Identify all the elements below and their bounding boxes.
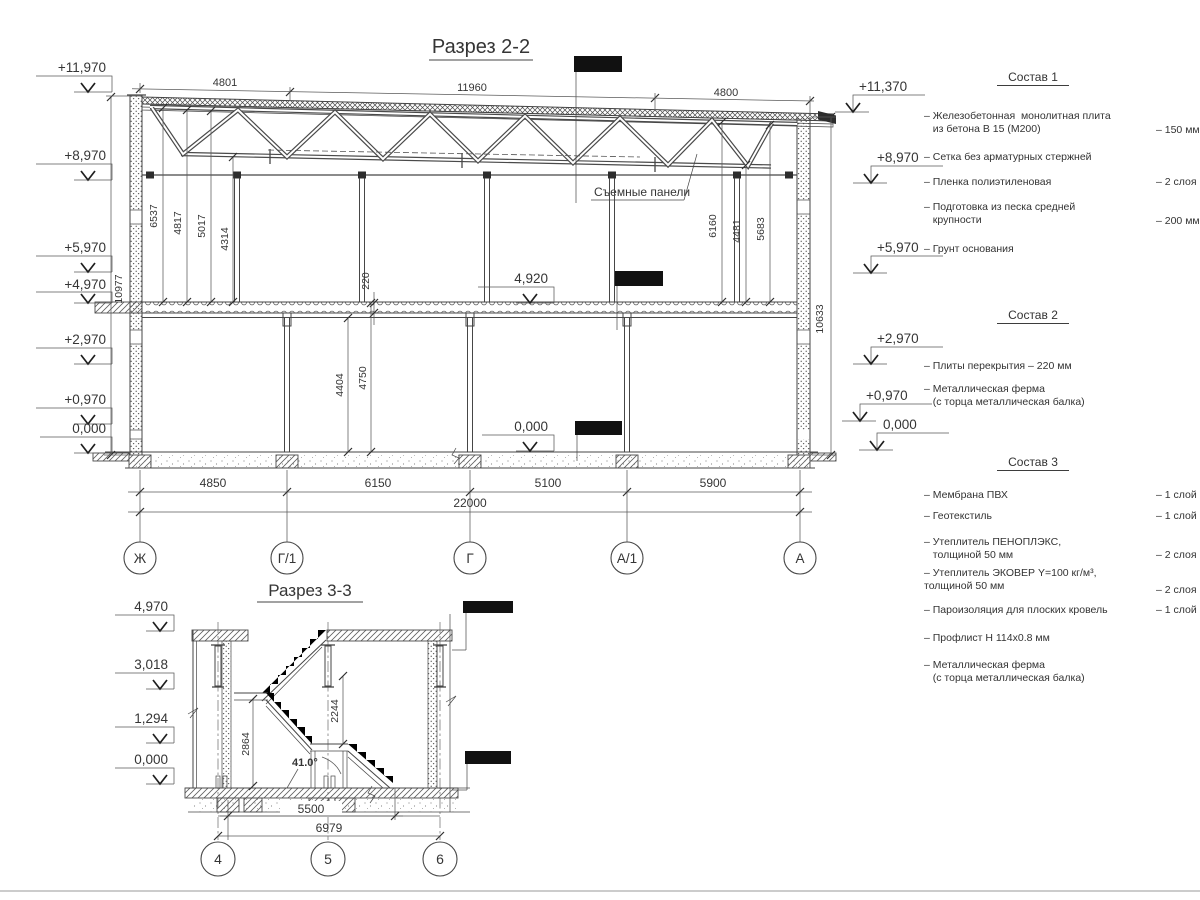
dim-5900: 5900	[700, 476, 727, 490]
grid-label-a: А	[795, 551, 804, 566]
roof-height-dims: 6537 4817 5017 4314 6160 4481 5683	[148, 104, 774, 306]
note-item: – Металлическая ферма (с торца металличе…	[924, 383, 1152, 408]
dim-4800: 4800	[714, 87, 738, 99]
section-2-2: Разрез 2-2	[36, 36, 949, 574]
grid-label-a1: А/1	[617, 551, 637, 566]
elev-8970-r: +8,970	[877, 150, 919, 165]
elev-0000-l: 0,000	[72, 421, 106, 436]
dim-5500: 5500	[298, 802, 325, 816]
dim-6150: 6150	[365, 476, 392, 490]
overall-height-dims: 10977 10633	[104, 93, 836, 459]
note-value: – 2 слоя	[1156, 549, 1200, 561]
grid-axes: Ж Г/1 Г А/1 А	[124, 516, 816, 574]
dim-11960: 11960	[457, 82, 487, 94]
elev-4920-mid: 4,920	[514, 271, 548, 286]
foundation-pad	[244, 798, 262, 812]
grid-label-5: 5	[324, 851, 332, 867]
dim-5683: 5683	[755, 217, 767, 241]
elev-0970-l: +0,970	[64, 392, 106, 407]
note-item: – Пленка полиэтиленовая	[924, 176, 1152, 189]
elev-2970-l: +2,970	[64, 332, 106, 347]
elevation-marks-33: 4,970 3,018 1,294 0,000	[115, 599, 174, 784]
dim-6160: 6160	[707, 214, 719, 238]
floor-height-dims: 4404 4750	[334, 299, 375, 456]
grid-axes-33: 4 5 6	[201, 842, 457, 876]
vert-dims-33: 2864 2244	[240, 672, 347, 790]
dim-4314: 4314	[219, 227, 231, 251]
note-value: – 1 слой	[1156, 604, 1200, 616]
elev-0000-33: 0,000	[134, 752, 168, 767]
grid-label-g1: Г/1	[278, 551, 297, 566]
angle-label: 41.0°	[292, 757, 318, 769]
stair-flight-middle	[266, 693, 312, 744]
section-2-2-title: Разрез 2-2	[432, 36, 530, 58]
redacted-cut-label	[615, 271, 663, 286]
elev-2970-r: +2,970	[877, 331, 919, 346]
roof-end-cap	[818, 111, 836, 124]
angle-callout: 41.0°	[287, 757, 341, 788]
grid-label-4: 4	[214, 851, 222, 867]
redacted-cut-label	[575, 421, 622, 435]
note-title-sostav3: Состав 3	[997, 455, 1069, 471]
note-item: – Сетка без арматурных стержней	[924, 151, 1152, 164]
drawing-sheet: Разрез 2-2	[0, 0, 1200, 900]
dim-6979: 6979	[316, 821, 343, 835]
note-item: – Плиты перекрытия – 220 мм	[924, 360, 1152, 373]
note-item: – Железобетонная монолитная плита из бет…	[924, 110, 1152, 135]
elev-0000-mid: 0,000	[514, 419, 548, 434]
bottom-dims: 4850 6150 5100 5900 22000	[128, 470, 812, 516]
dim-4850: 4850	[200, 476, 227, 490]
note-value: – 150 мм	[1156, 124, 1200, 136]
section-3-3: Разрез 3-3	[115, 581, 513, 876]
dim-22000: 22000	[453, 496, 487, 510]
drawing-canvas: Разрез 2-2	[0, 0, 1200, 900]
elev-5970-r: +5,970	[877, 240, 919, 255]
left-wall	[127, 95, 146, 455]
elev-1294-33: 1,294	[134, 711, 168, 726]
note-value: – 200 мм	[1156, 215, 1200, 227]
note-item: – Профлист Н 114х0.8 мм	[924, 632, 1152, 645]
dim-4481: 4481	[731, 219, 743, 243]
slab-33-right	[327, 630, 452, 641]
floor-slab	[95, 302, 797, 326]
note-value: – 2 слоя	[1156, 176, 1200, 188]
redacted-cut-label	[465, 751, 511, 764]
note-item: – Грунт основания	[924, 243, 1152, 256]
slab-33-left	[192, 630, 248, 641]
note-value: – 2 слоя	[1156, 584, 1200, 596]
panels-label: Съемные панели	[594, 185, 690, 199]
dim-10633: 10633	[814, 304, 826, 333]
elev-4970-33: 4,970	[134, 599, 168, 614]
grid-label-6: 6	[436, 851, 444, 867]
elev-11370: +11,370	[859, 79, 907, 94]
redacted-cut-label	[574, 56, 622, 72]
stair-flight-upper	[262, 630, 326, 693]
truss-bearing-line	[142, 172, 797, 179]
elevation-marks-left: +11,970 +8,970 +5,970 +4,970 +2,970 +0,9…	[36, 60, 112, 453]
redacted-cut-label	[463, 601, 513, 613]
note-value: – 1 слой	[1156, 489, 1200, 501]
note-item: – Утеплитель ПЕНОПЛЭКС, толщиной 50 мм	[924, 536, 1152, 561]
dim-4404: 4404	[334, 373, 346, 397]
foundation-pad	[616, 455, 638, 468]
note-value: – 1 слой	[1156, 510, 1200, 522]
note-title-sostav1: Состав 1	[997, 70, 1069, 86]
elev-11970: +11,970	[58, 60, 106, 75]
elev-4970-l: +4,970	[64, 277, 106, 292]
section-3-3-title: Разрез 3-3	[268, 581, 351, 600]
note-item: – Геотекстиль	[924, 510, 1152, 523]
dim-4801: 4801	[213, 77, 237, 89]
dim-5017: 5017	[196, 214, 208, 238]
break-mark	[446, 696, 456, 706]
elev-0000-r: 0,000	[883, 417, 917, 432]
note-item: – Металлическая ферма (с торца металличе…	[924, 659, 1152, 684]
note-item: – Подготовка из песка средней крупности	[924, 201, 1152, 226]
elev-3018-33: 3,018	[134, 657, 168, 672]
dim-220: 220	[360, 272, 372, 290]
elev-5970-l: +5,970	[64, 240, 106, 255]
dim-4817: 4817	[172, 211, 184, 235]
dim-6537: 6537	[148, 204, 160, 228]
elev-0970-r: +0,970	[866, 388, 908, 403]
note-title-sostav2: Состав 2	[997, 308, 1069, 324]
dim-10977: 10977	[113, 274, 125, 303]
foundation-pad	[276, 455, 298, 468]
dim-2244: 2244	[329, 699, 341, 723]
note-item: – Мембрана ПВХ	[924, 489, 1152, 502]
right-wall	[797, 117, 810, 455]
dim-4750: 4750	[357, 366, 369, 390]
note-item: – Пароизоляция для плоских кровель	[924, 604, 1152, 617]
grid-label-g: Г	[466, 551, 474, 566]
cut-marks-33	[452, 601, 513, 790]
note-item: – Утеплитель ЭКОВЕР Y=100 кг/м³, толщино…	[924, 567, 1152, 592]
ground-slab	[93, 448, 836, 468]
grid-label-zh: Ж	[134, 551, 147, 566]
elev-8970-l: +8,970	[64, 148, 106, 163]
foundation-pad	[129, 455, 151, 468]
foundation-pad	[788, 455, 810, 468]
dim-5100: 5100	[535, 476, 562, 490]
dim-2864: 2864	[240, 732, 252, 756]
foundation-pad	[459, 455, 481, 468]
